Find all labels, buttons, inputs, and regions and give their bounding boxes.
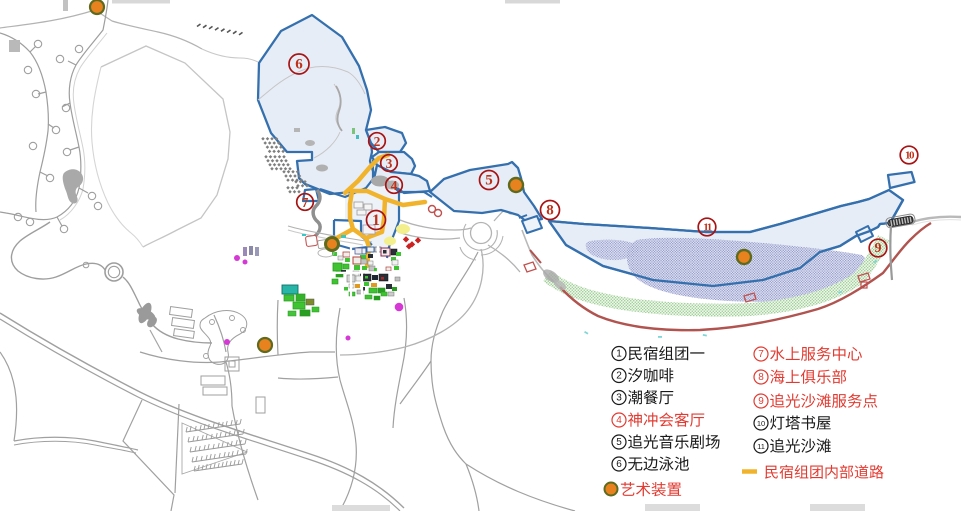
- svg-text:3: 3: [616, 393, 622, 404]
- svg-text:11: 11: [757, 442, 765, 451]
- svg-text:11: 11: [703, 222, 711, 234]
- svg-text:8: 8: [546, 203, 554, 219]
- svg-text:5: 5: [485, 173, 493, 189]
- svg-text:2: 2: [616, 371, 622, 382]
- svg-text:6: 6: [616, 459, 622, 470]
- svg-text:1: 1: [372, 212, 380, 229]
- svg-text:1: 1: [616, 349, 622, 360]
- svg-text:4: 4: [391, 178, 398, 193]
- svg-text:3: 3: [386, 156, 393, 171]
- svg-text:7: 7: [302, 195, 309, 210]
- svg-text:4: 4: [616, 415, 622, 426]
- svg-text:6: 6: [295, 57, 303, 73]
- svg-text:7: 7: [758, 349, 764, 360]
- svg-text:9: 9: [758, 396, 764, 407]
- svg-text:9: 9: [875, 241, 882, 256]
- svg-text:2: 2: [374, 134, 381, 149]
- svg-text:8: 8: [758, 372, 764, 383]
- svg-text:10: 10: [757, 419, 765, 428]
- svg-text:5: 5: [616, 437, 622, 448]
